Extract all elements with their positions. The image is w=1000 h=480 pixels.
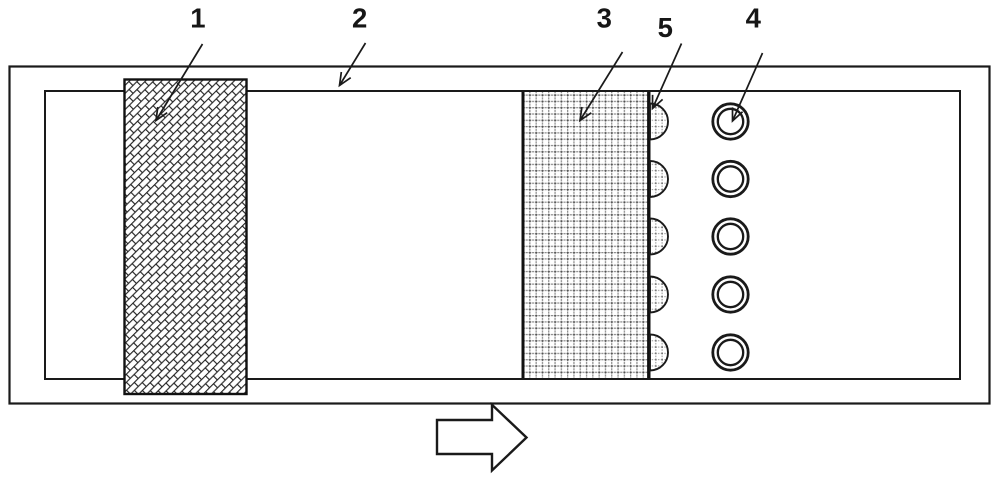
svg-text:4: 4 [746, 3, 762, 34]
svg-text:3: 3 [597, 3, 612, 34]
svg-text:2: 2 [352, 3, 367, 34]
svg-text:1: 1 [190, 3, 205, 34]
svg-text:5: 5 [658, 12, 673, 43]
